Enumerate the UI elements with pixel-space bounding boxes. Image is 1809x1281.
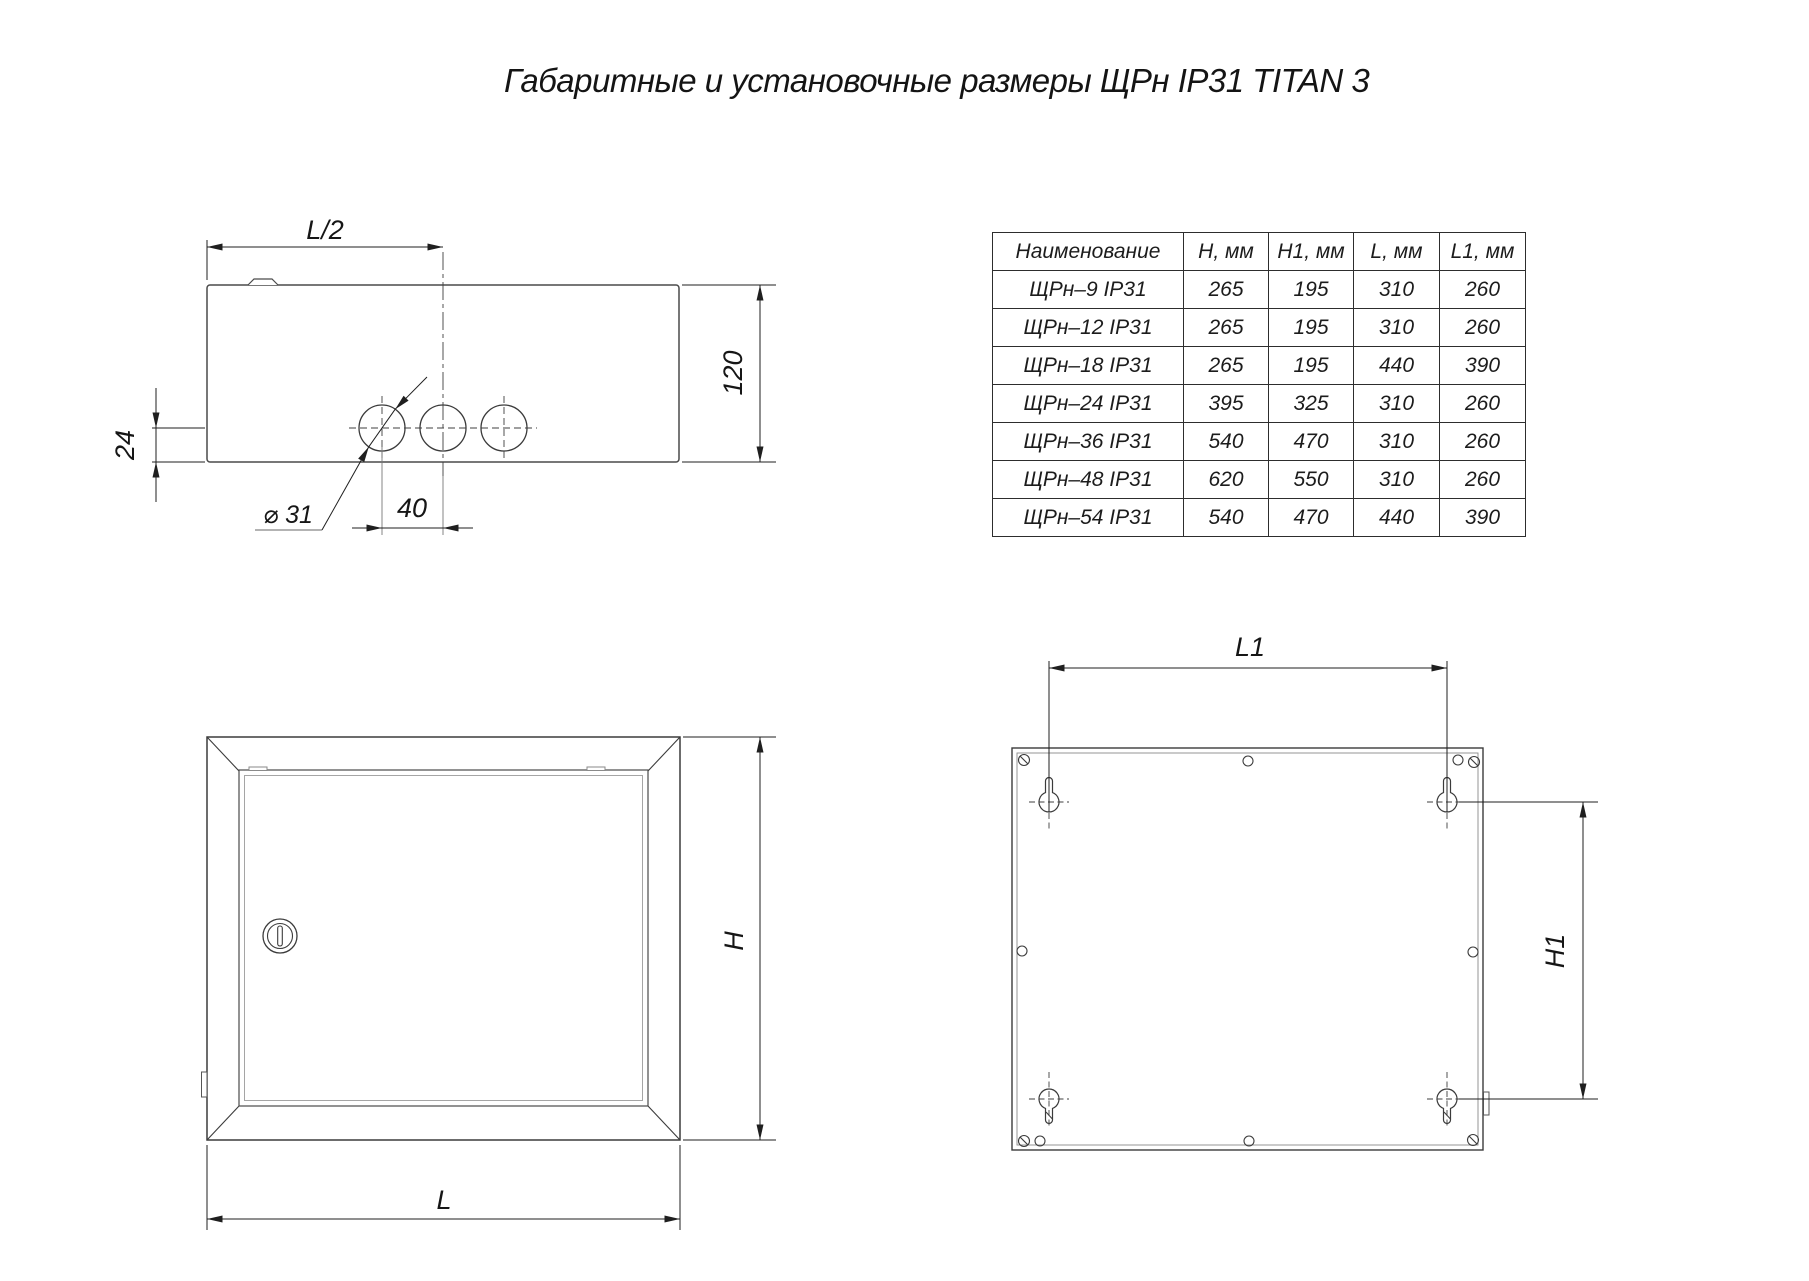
cell-l1: 390 (1440, 499, 1526, 537)
dim-label-l-half: L/2 (306, 215, 344, 245)
dim-label-mount-height: H1 (1540, 934, 1570, 969)
cell-l: 310 (1354, 423, 1440, 461)
cell-l1: 260 (1440, 385, 1526, 423)
cell-l1: 260 (1440, 271, 1526, 309)
cell-l: 440 (1354, 499, 1440, 537)
table-header-row: Наименование H, мм H1, мм L, мм L1, мм (993, 233, 1526, 271)
cell-h1: 325 (1269, 385, 1354, 423)
cell-name: ЩРн–36 IP31 (993, 423, 1184, 461)
cell-h: 540 (1184, 499, 1269, 537)
table-row: ЩРн–9 IP31 265 195 310 260 (993, 271, 1526, 309)
latch-mark (1484, 1092, 1490, 1115)
cell-h: 265 (1184, 309, 1269, 347)
col-header-name: Наименование (993, 233, 1184, 271)
table-row: ЩРн–54 IP31 540 470 440 390 (993, 499, 1526, 537)
cell-name: ЩРн–12 IP31 (993, 309, 1184, 347)
table-row: ЩРн–12 IP31 265 195 310 260 (993, 309, 1526, 347)
drawing-linework: L/2 24 120 (0, 0, 1809, 1281)
cell-h: 265 (1184, 347, 1269, 385)
cell-l: 310 (1354, 309, 1440, 347)
dim-hole-pitch: 40 (352, 447, 473, 535)
dim-label-hole-pitch: 40 (397, 493, 427, 523)
cell-h: 620 (1184, 461, 1269, 499)
cell-h: 395 (1184, 385, 1269, 423)
back-panel-outline (1012, 748, 1483, 1150)
cell-h1: 470 (1269, 499, 1354, 537)
back-view: L1 H1 (1012, 632, 1598, 1150)
dim-label-depth: 120 (718, 350, 748, 395)
cell-l1: 260 (1440, 461, 1526, 499)
table-row: ЩРн–18 IP31 265 195 440 390 (993, 347, 1526, 385)
table-row: ЩРн–36 IP31 540 470 310 260 (993, 423, 1526, 461)
dimension-table: Наименование H, мм H1, мм L, мм L1, мм Щ… (992, 232, 1526, 537)
dim-hole-offset: 24 (110, 388, 205, 502)
cell-h1: 470 (1269, 423, 1354, 461)
door-latch-mark (249, 767, 267, 771)
cell-l1: 260 (1440, 309, 1526, 347)
cell-l: 310 (1354, 461, 1440, 499)
cell-name: ЩРн–48 IP31 (993, 461, 1184, 499)
dim-height: H (683, 737, 776, 1140)
cell-name: ЩРн–24 IP31 (993, 385, 1184, 423)
drawing-sheet: Габаритные и установочные размеры ЩРн IP… (0, 0, 1809, 1281)
cell-name: ЩРн–9 IP31 (993, 271, 1184, 309)
cell-name: ЩРн–54 IP31 (993, 499, 1184, 537)
cell-h1: 195 (1269, 271, 1354, 309)
dim-label-length: L (436, 1185, 451, 1215)
front-view: H L (202, 737, 777, 1230)
cell-h1: 195 (1269, 309, 1354, 347)
hinge-tab (248, 279, 278, 285)
cell-h1: 550 (1269, 461, 1354, 499)
cell-name: ЩРн–18 IP31 (993, 347, 1184, 385)
dim-l-half: L/2 (207, 215, 443, 280)
cell-l: 310 (1354, 271, 1440, 309)
table-row: ЩРн–48 IP31 620 550 310 260 (993, 461, 1526, 499)
top-view: L/2 24 120 (110, 215, 776, 535)
dim-label-hole-diameter: ⌀ 31 (263, 501, 313, 529)
dim-label-hole-offset: 24 (110, 430, 140, 461)
cell-l: 440 (1354, 347, 1440, 385)
col-header-l1: L1, мм (1440, 233, 1526, 271)
cell-h: 265 (1184, 271, 1269, 309)
cell-h: 540 (1184, 423, 1269, 461)
cell-h1: 195 (1269, 347, 1354, 385)
col-header-h1: H1, мм (1269, 233, 1354, 271)
col-header-h: H, мм (1184, 233, 1269, 271)
dim-label-mount-length: L1 (1235, 632, 1265, 662)
cell-l1: 390 (1440, 347, 1526, 385)
dim-depth: 120 (682, 285, 776, 462)
dim-length: L (207, 1145, 680, 1230)
hinge-mark (202, 1072, 208, 1097)
table-row: ЩРн–24 IP31 395 325 310 260 (993, 385, 1526, 423)
cell-l1: 260 (1440, 423, 1526, 461)
col-header-l: L, мм (1354, 233, 1440, 271)
cell-l: 310 (1354, 385, 1440, 423)
dim-label-height: H (719, 931, 749, 951)
door-latch-mark (587, 767, 605, 771)
